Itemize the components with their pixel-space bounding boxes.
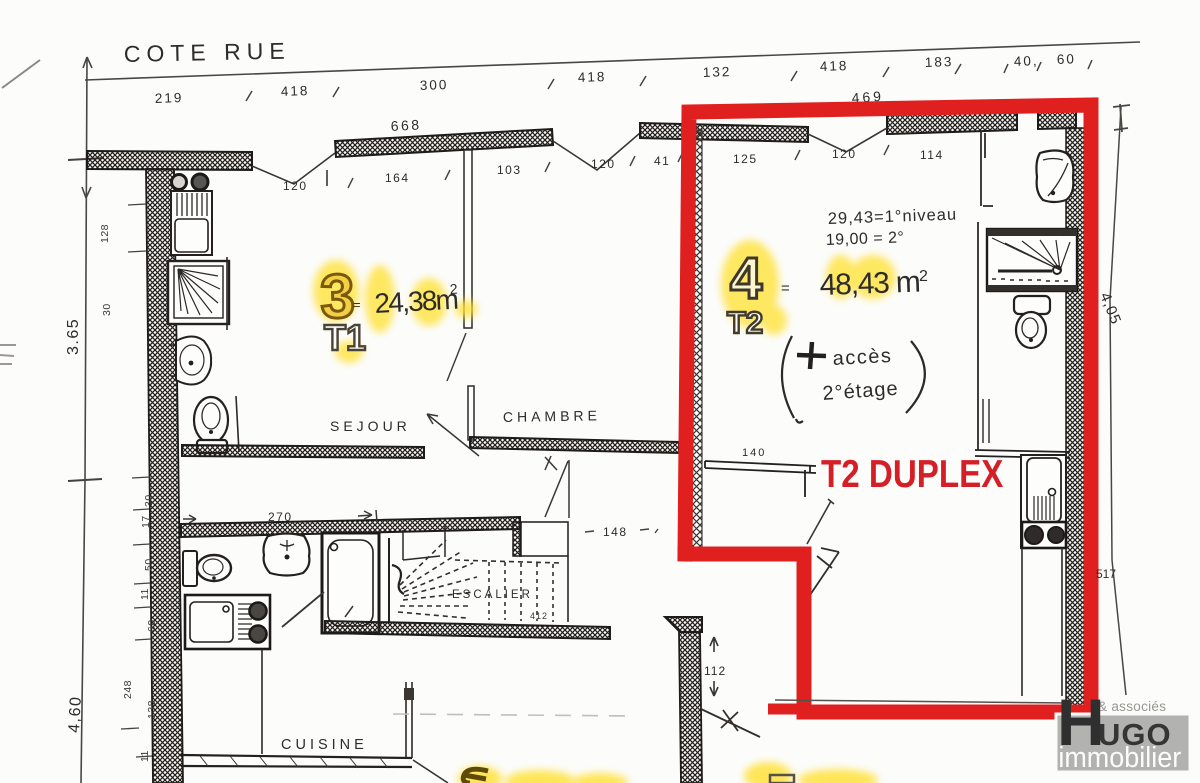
- svg-text:ESCALIER: ESCALIER: [452, 589, 533, 601]
- svg-text:418: 418: [578, 69, 607, 85]
- svg-text:3.65: 3.65: [65, 318, 82, 355]
- svg-text:183: 183: [925, 54, 954, 70]
- svg-text:300: 300: [420, 77, 449, 93]
- svg-text:& associés: & associés: [1098, 699, 1166, 714]
- svg-text:30: 30: [101, 303, 113, 316]
- svg-text:accès: accès: [832, 345, 893, 370]
- svg-text:30: 30: [143, 494, 155, 507]
- svg-text:140: 140: [742, 447, 766, 459]
- svg-text:24,38m: 24,38m: [374, 284, 459, 319]
- svg-text:112: 112: [704, 664, 726, 678]
- svg-text:60: 60: [146, 619, 158, 632]
- svg-text:SEJOUR: SEJOUR: [330, 418, 411, 434]
- svg-text:60: 60: [1057, 51, 1077, 67]
- svg-text:T1: T1: [324, 317, 366, 358]
- svg-text:219: 219: [155, 90, 184, 106]
- svg-text:COTE RUE: COTE RUE: [124, 38, 291, 67]
- svg-text:132: 132: [703, 64, 732, 80]
- svg-text:148: 148: [603, 525, 628, 539]
- svg-text:CHAMBRE: CHAMBRE: [503, 407, 601, 425]
- svg-text:50: 50: [143, 558, 155, 571]
- svg-text:418: 418: [820, 58, 849, 74]
- svg-text:11: 11: [139, 588, 151, 600]
- svg-text:125: 125: [733, 152, 758, 166]
- svg-text:40,: 40,: [1014, 53, 1039, 69]
- svg-text:2: 2: [919, 268, 928, 285]
- svg-text:T2 DUPLEX: T2 DUPLEX: [821, 451, 1003, 495]
- svg-text:4,60: 4,60: [66, 695, 85, 733]
- svg-text:2: 2: [449, 281, 458, 297]
- svg-text:T2: T2: [727, 305, 763, 340]
- svg-text:668: 668: [390, 116, 422, 134]
- svg-text:164: 164: [385, 171, 410, 185]
- svg-text:=: =: [353, 297, 361, 312]
- svg-text:270: 270: [268, 510, 293, 524]
- svg-text:41: 41: [654, 154, 670, 168]
- svg-text:4: 4: [730, 246, 762, 311]
- svg-text:418: 418: [281, 83, 310, 99]
- svg-text:=: =: [781, 280, 790, 297]
- svg-text:17: 17: [140, 515, 152, 528]
- svg-text:immobilier: immobilier: [1058, 741, 1181, 773]
- svg-text:120: 120: [283, 179, 308, 193]
- svg-text:48,43 m: 48,43 m: [819, 266, 920, 302]
- svg-text:248: 248: [122, 680, 134, 699]
- svg-text:103: 103: [497, 163, 522, 177]
- svg-text:517: 517: [1096, 567, 1116, 581]
- svg-text:128: 128: [99, 224, 111, 243]
- svg-text:412: 412: [530, 611, 548, 621]
- svg-text:CUISINE: CUISINE: [281, 737, 368, 753]
- svg-text:19,00 = 2°: 19,00 = 2°: [826, 229, 905, 249]
- svg-text:138: 138: [146, 700, 158, 719]
- svg-text:114: 114: [920, 148, 944, 162]
- svg-text:120: 120: [832, 147, 857, 161]
- svg-text:120: 120: [591, 157, 616, 171]
